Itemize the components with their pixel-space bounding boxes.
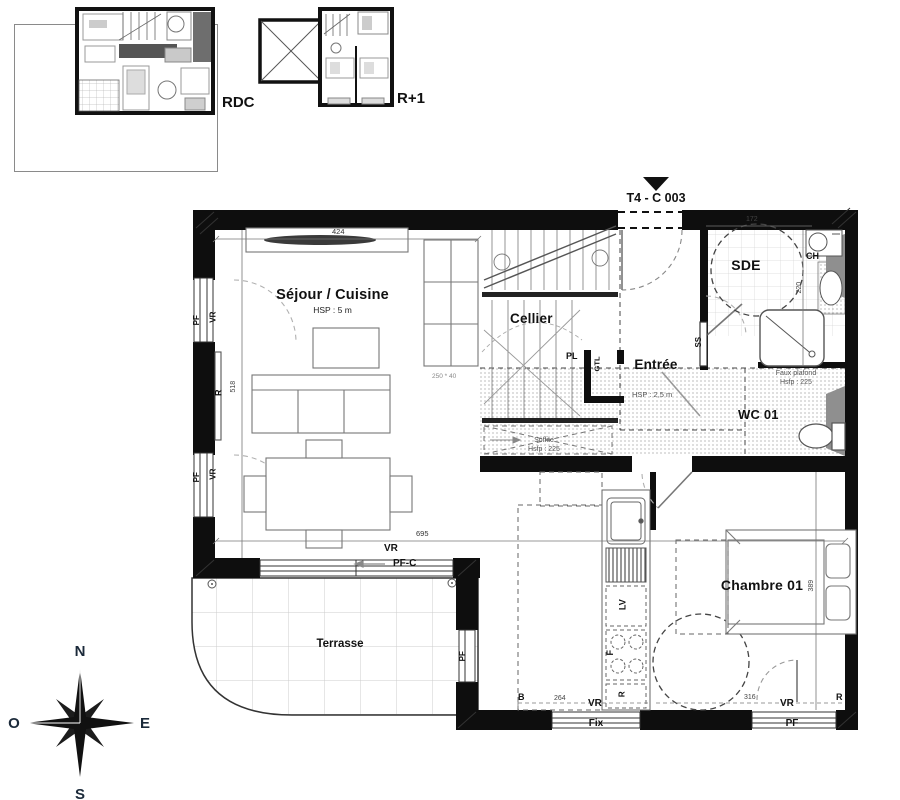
opening-pf-terrasse: PF <box>459 651 467 661</box>
opening-fix-kitchen: Fix <box>576 719 616 730</box>
opening-pf-window1: PF <box>193 315 201 325</box>
equip-lv: LV <box>619 599 628 610</box>
room-label-entree: Entrée <box>620 358 692 372</box>
equip-radiator-left: R <box>215 389 224 396</box>
compass-south-label: S <box>75 786 85 800</box>
kitchen-fixtures <box>518 472 650 710</box>
room-label-cellier: Cellier <box>510 312 553 326</box>
room-label-terrasse: Terrasse <box>288 638 392 650</box>
opening-vr-chambre: VR <box>780 699 794 710</box>
equip-pl: PL <box>566 352 578 361</box>
opening-vr-sejour-south: VR <box>384 544 398 555</box>
dim-264: 264 <box>554 695 566 702</box>
sejour-furniture <box>215 228 478 548</box>
compass-rose: N O E S <box>5 638 155 800</box>
opening-pf-window2: PF <box>193 472 201 482</box>
soffite-note-line2: Hsfp : 225 <box>512 446 576 453</box>
equip-gtl: GTL <box>594 356 602 371</box>
compass-east-label: E <box>140 715 150 732</box>
room-label-wc: WC 01 <box>738 408 779 422</box>
room-label-chambre: Chambre 01 <box>698 578 826 593</box>
equip-radiator-right: R <box>836 693 843 702</box>
dim-220: 220 <box>796 282 803 294</box>
compass-west-label: O <box>8 715 20 732</box>
dim-316: 316 <box>744 694 756 701</box>
floor-plan-page: RDC R+1 T4 - C 003 <box>0 0 900 800</box>
size-note: 250 * 40 <box>432 374 456 381</box>
room-hsp-sejour: HSP : 5 m <box>250 306 415 315</box>
dim-695: 695 <box>416 530 429 538</box>
faux-plafond-note-line1: Faux plafond <box>758 370 834 377</box>
equip-ss: SS <box>695 337 703 348</box>
opening-vr-kitchen: VR <box>588 699 602 710</box>
dim-389: 389 <box>808 580 815 592</box>
dim-424: 424 <box>332 228 345 236</box>
equip-ch: CH <box>806 252 819 261</box>
opening-vr-window1: VR <box>209 312 217 323</box>
room-label-sde: SDE <box>716 258 776 273</box>
room-label-sejour: Séjour / Cuisine <box>250 288 415 303</box>
compass-north-label: N <box>75 643 86 660</box>
equip-b: B <box>518 693 525 702</box>
dim-518: 518 <box>230 381 237 393</box>
room-hsp-entree: HSP : 2,5 m <box>632 391 672 399</box>
opening-pfc-sejour-south: PF-C <box>393 559 416 570</box>
entrance-threshold <box>618 212 682 228</box>
equip-fridge: R <box>619 691 627 697</box>
dim-172: 172 <box>746 216 758 223</box>
equip-four: F <box>606 650 615 656</box>
opening-pf-chambre: PF <box>772 719 812 730</box>
opening-vr-window2: VR <box>209 469 217 480</box>
toilet <box>799 423 845 450</box>
faux-plafond-note-line2: Hsfp : 225 <box>758 379 834 386</box>
soffite-note-line1: Soffite <box>512 437 576 444</box>
